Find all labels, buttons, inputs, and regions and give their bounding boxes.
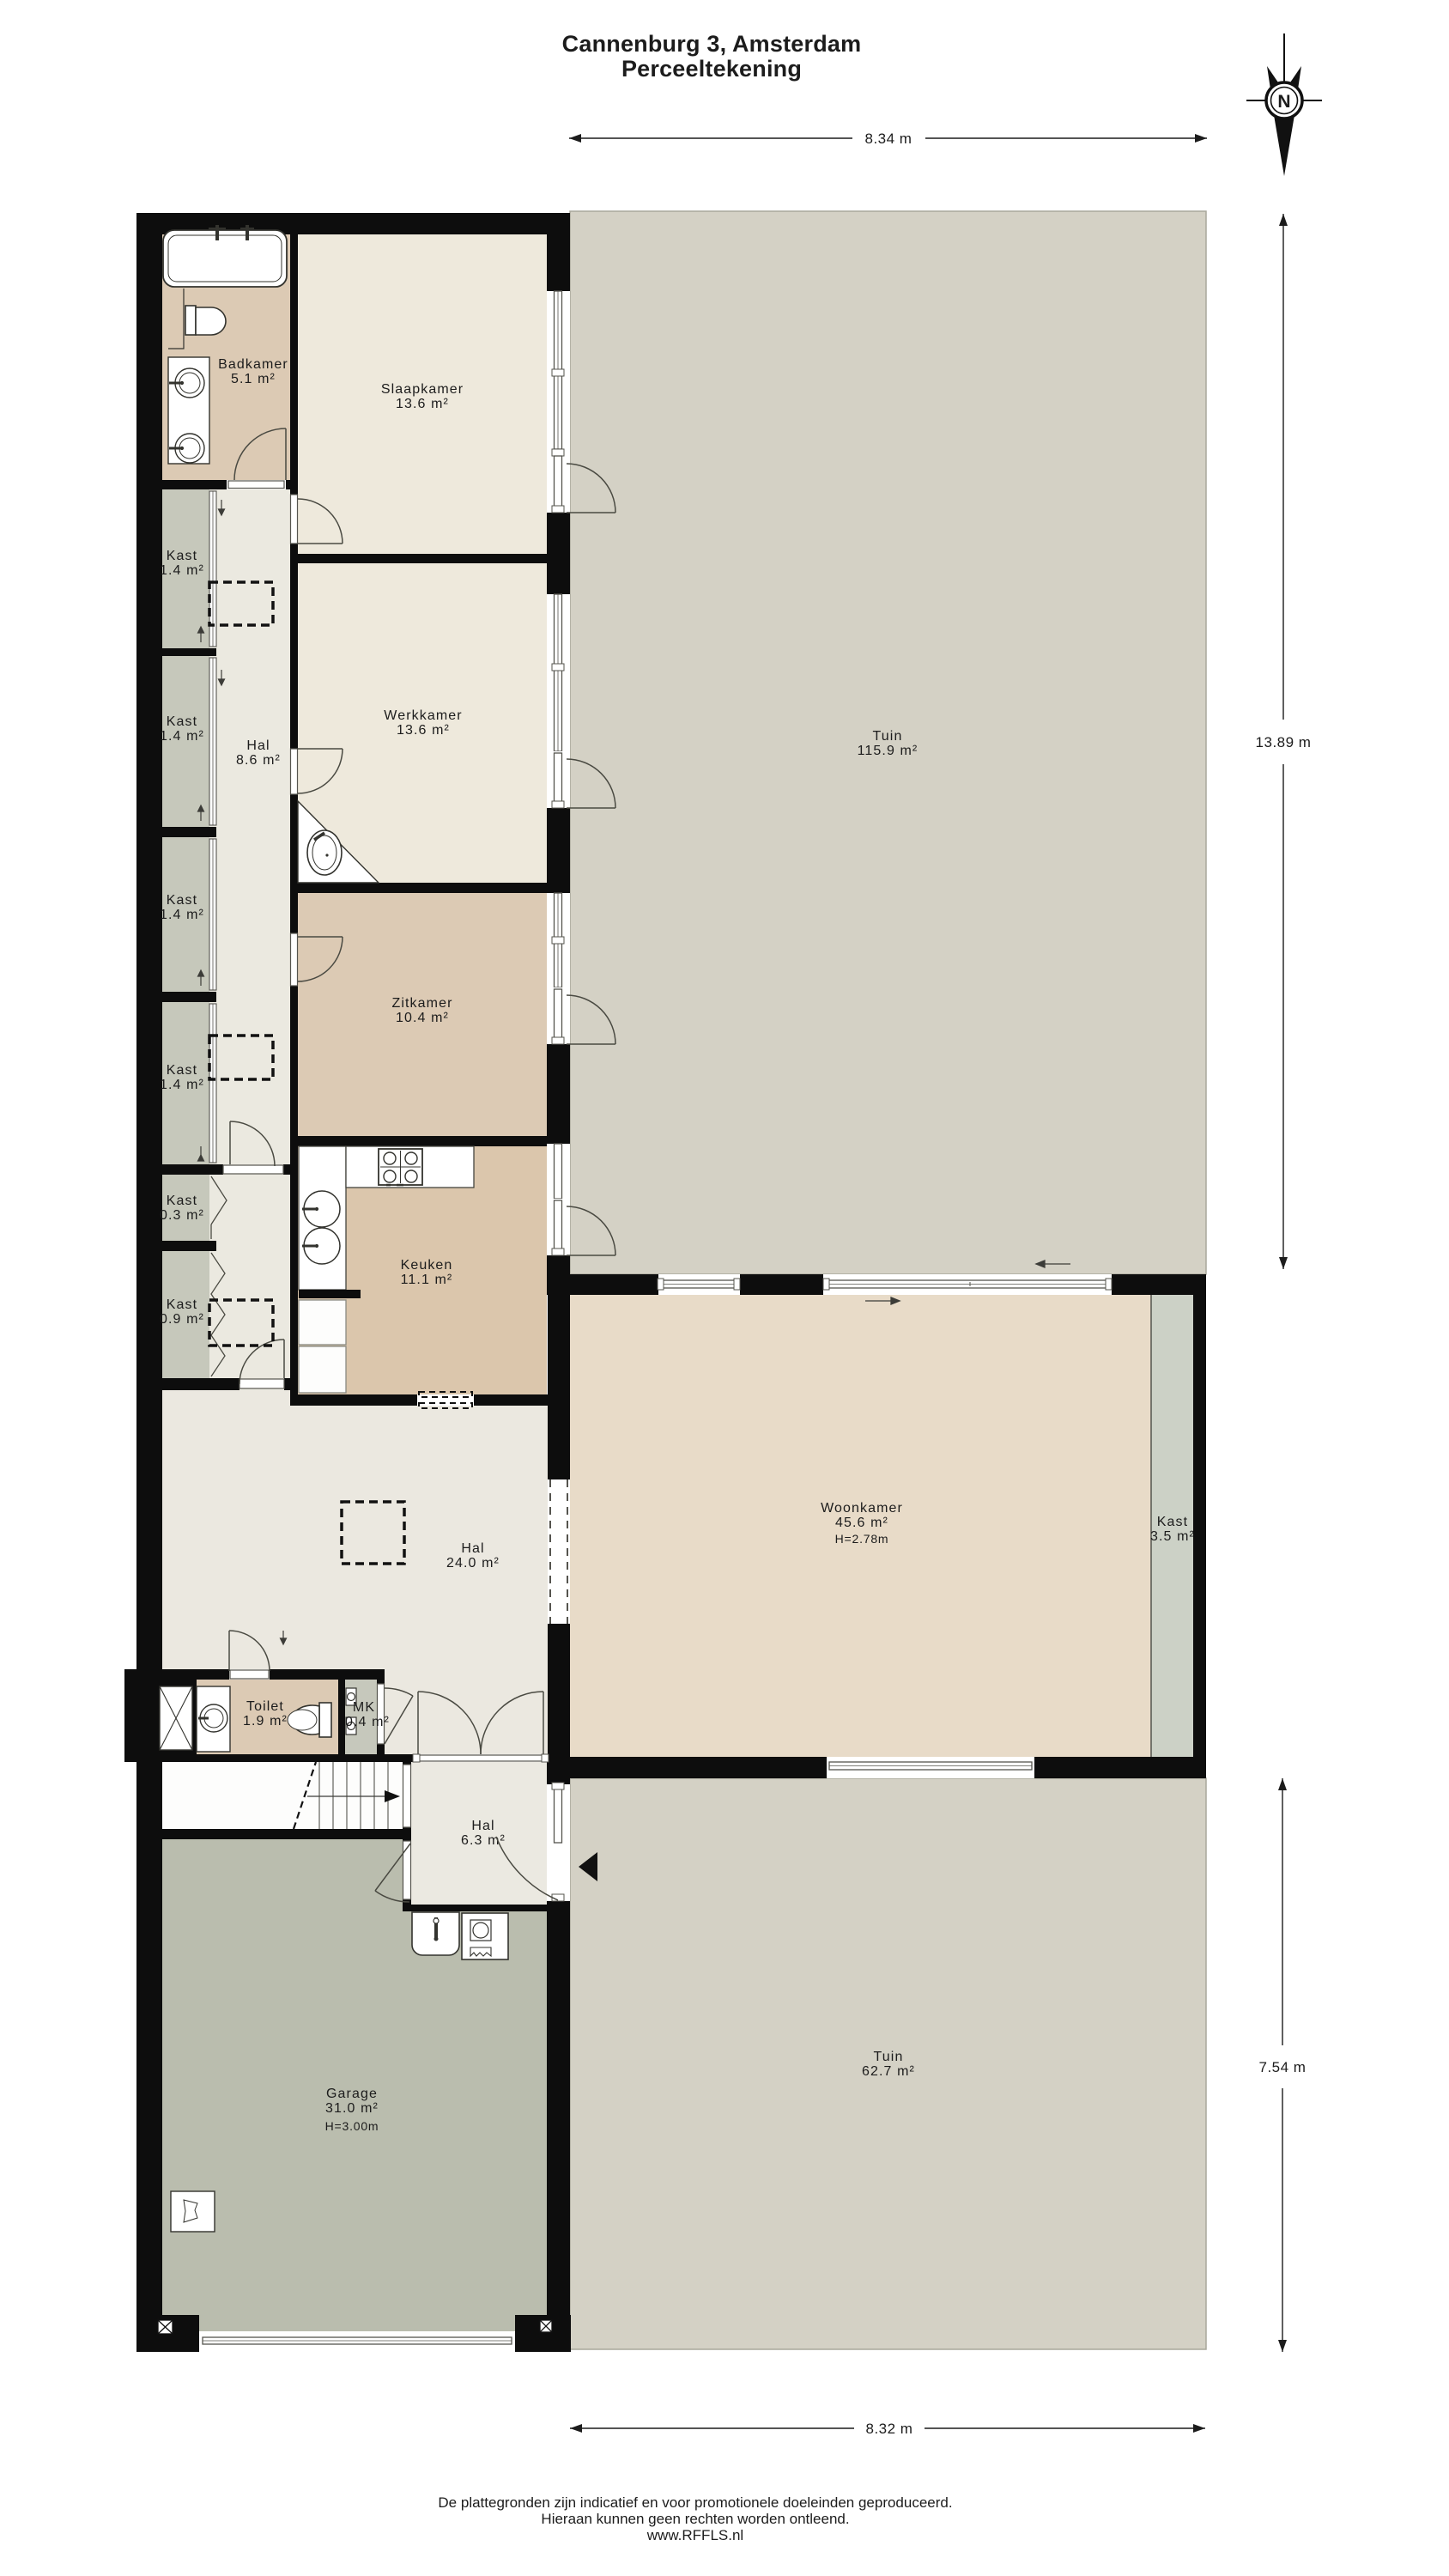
svg-text:8.32 m: 8.32 m [866, 2421, 913, 2437]
svg-text:Kast: Kast [167, 549, 197, 563]
svg-text:13.6 m²: 13.6 m² [396, 397, 449, 411]
svg-text:De plattegronden zijn indicati: De plattegronden zijn indicatief en voor… [438, 2494, 952, 2511]
svg-text:Zitkamer: Zitkamer [391, 996, 452, 1011]
svg-text:13.6 m²: 13.6 m² [397, 723, 450, 738]
svg-text:1.4 m²: 1.4 m² [160, 1078, 204, 1092]
svg-text:1.4 m²: 1.4 m² [160, 908, 204, 922]
svg-text:1.4 m²: 1.4 m² [160, 729, 204, 744]
svg-text:6.3 m²: 6.3 m² [461, 1833, 506, 1848]
svg-text:11.1 m²: 11.1 m² [401, 1273, 453, 1287]
svg-text:31.0 m²: 31.0 m² [325, 2101, 379, 2116]
svg-text:Kast: Kast [1157, 1515, 1188, 1529]
svg-text:0.3 m²: 0.3 m² [160, 1208, 204, 1223]
svg-text:Kast: Kast [167, 714, 197, 729]
svg-text:Hal: Hal [246, 738, 270, 753]
svg-text:www.RFFLS.nl: www.RFFLS.nl [646, 2527, 743, 2543]
svg-text:24.0 m²: 24.0 m² [446, 1556, 500, 1571]
svg-text:Woonkamer: Woonkamer [821, 1501, 903, 1516]
svg-text:5.1 m²: 5.1 m² [231, 372, 276, 386]
svg-text:Keuken: Keuken [401, 1258, 453, 1273]
svg-text:8.6 m²: 8.6 m² [236, 753, 281, 768]
svg-text:62.7 m²: 62.7 m² [862, 2064, 915, 2079]
svg-text:7.54 m: 7.54 m [1259, 2059, 1307, 2075]
svg-text:Hieraan kunnen geen rechten wo: Hieraan kunnen geen rechten worden ontle… [541, 2511, 849, 2527]
svg-text:Badkamer: Badkamer [218, 357, 288, 372]
svg-text:H=2.78m: H=2.78m [835, 1532, 889, 1546]
svg-text:Kast: Kast [167, 1297, 197, 1312]
svg-text:Hal: Hal [461, 1541, 484, 1556]
svg-text:Perceeltekening: Perceeltekening [621, 56, 802, 82]
svg-text:Kast: Kast [167, 1063, 197, 1078]
svg-text:8.34 m: 8.34 m [865, 131, 912, 147]
svg-text:Cannenburg 3, Amsterdam: Cannenburg 3, Amsterdam [562, 31, 862, 57]
svg-text:Kast: Kast [167, 893, 197, 908]
svg-text:115.9 m²: 115.9 m² [858, 744, 919, 758]
svg-text:N: N [1277, 92, 1290, 112]
svg-text:Toilet: Toilet [246, 1699, 284, 1714]
svg-text:Garage: Garage [326, 2087, 378, 2101]
svg-text:10.4 m²: 10.4 m² [396, 1011, 449, 1025]
svg-text:Tuin: Tuin [873, 729, 903, 744]
svg-text:Hal: Hal [471, 1819, 494, 1833]
svg-text:0.4 m²: 0.4 m² [345, 1715, 390, 1729]
svg-text:Tuin: Tuin [874, 2050, 904, 2064]
svg-text:Werkkamer: Werkkamer [384, 708, 462, 723]
svg-text:MK: MK [353, 1700, 375, 1715]
svg-text:0.9 m²: 0.9 m² [160, 1312, 204, 1327]
svg-text:1.9 m²: 1.9 m² [243, 1714, 288, 1728]
svg-text:13.89 m: 13.89 m [1256, 734, 1312, 750]
svg-text:3.5 m²: 3.5 m² [1150, 1529, 1195, 1544]
svg-text:H=3.00m: H=3.00m [325, 2119, 379, 2133]
svg-text:Kast: Kast [167, 1194, 197, 1208]
svg-text:Slaapkamer: Slaapkamer [381, 382, 464, 397]
svg-text:45.6 m²: 45.6 m² [835, 1516, 888, 1530]
svg-text:1.4 m²: 1.4 m² [160, 563, 204, 578]
